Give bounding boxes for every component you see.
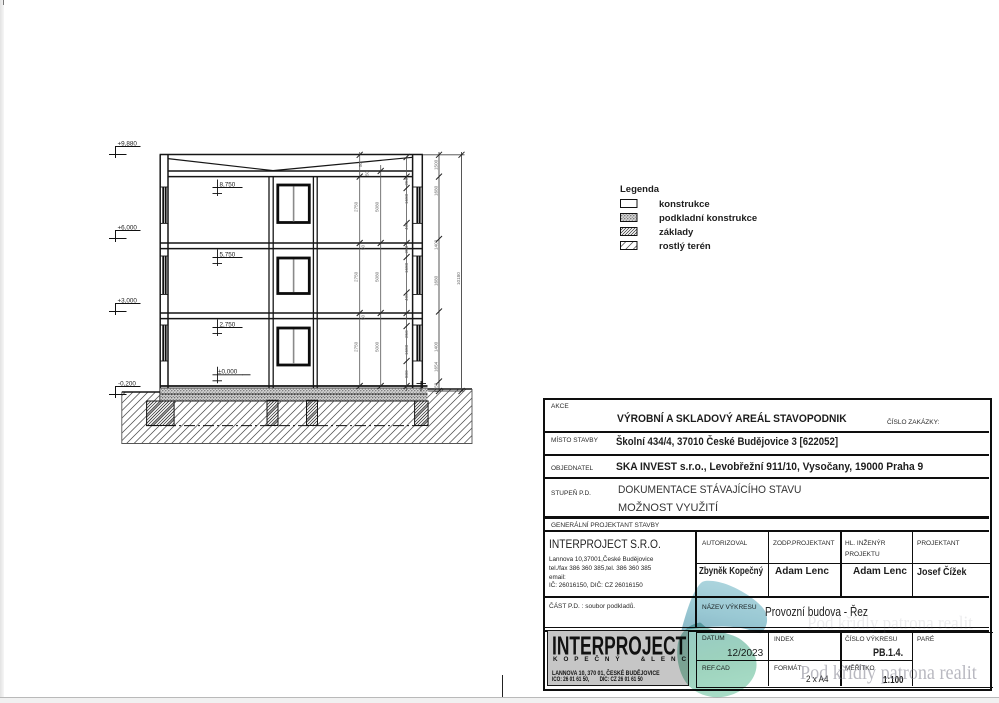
svg-text:10180: 10180 — [456, 272, 461, 285]
svg-text:8,750: 8,750 — [220, 181, 236, 188]
svg-text:1680: 1680 — [434, 275, 439, 286]
svg-text:50: 50 — [365, 170, 370, 176]
svg-text:±0,000: ±0,000 — [218, 369, 238, 376]
svg-text:1250: 1250 — [434, 382, 439, 393]
svg-text:1654: 1654 — [434, 361, 439, 372]
svg-text:+6,000: +6,000 — [118, 224, 138, 231]
svg-text:+3,000: +3,000 — [118, 297, 138, 304]
svg-text:400: 400 — [404, 222, 409, 230]
svg-text:+9,880: +9,880 — [118, 140, 138, 147]
svg-text:2750: 2750 — [354, 341, 359, 352]
svg-text:5000: 5000 — [375, 341, 380, 352]
svg-text:1680: 1680 — [404, 344, 409, 355]
svg-text:250: 250 — [404, 330, 409, 338]
svg-text:400: 400 — [404, 293, 409, 301]
svg-text:5080: 5080 — [375, 201, 380, 212]
svg-text:250: 250 — [404, 245, 409, 253]
svg-text:2750: 2750 — [354, 271, 359, 282]
svg-text:50: 50 — [358, 161, 363, 167]
svg-text:250: 250 — [404, 177, 409, 185]
svg-text:-0,200: -0,200 — [118, 381, 136, 388]
svg-text:1500: 1500 — [434, 159, 439, 170]
svg-text:1680: 1680 — [404, 193, 409, 204]
svg-text:1400: 1400 — [434, 341, 439, 352]
svg-text:50: 50 — [361, 314, 366, 320]
svg-text:1680: 1680 — [434, 185, 439, 196]
svg-text:5,750: 5,750 — [220, 251, 236, 258]
svg-text:50: 50 — [361, 244, 366, 250]
svg-text:1680: 1680 — [404, 262, 409, 273]
svg-text:1400: 1400 — [434, 239, 439, 250]
svg-text:2750: 2750 — [354, 201, 359, 212]
svg-text:800: 800 — [404, 370, 409, 378]
svg-text:5080: 5080 — [375, 271, 380, 282]
svg-text:2,750: 2,750 — [220, 321, 236, 328]
